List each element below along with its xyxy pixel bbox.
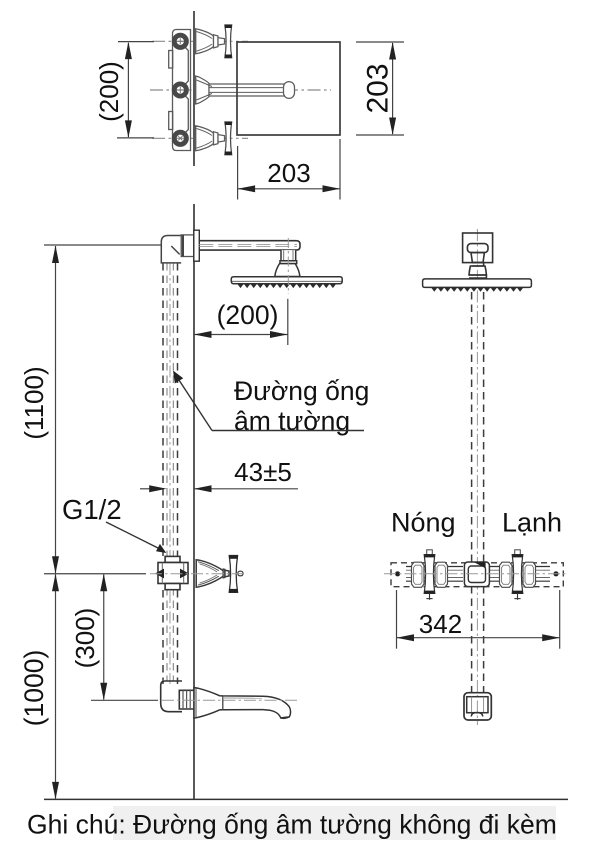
svg-text:Lạnh: Lạnh bbox=[502, 508, 562, 538]
svg-text:(300): (300) bbox=[70, 608, 100, 669]
svg-text:(200): (200) bbox=[94, 61, 124, 122]
svg-text:(1100): (1100) bbox=[19, 366, 49, 439]
svg-text:Đường ống: Đường ống bbox=[234, 376, 369, 406]
svg-text:(200): (200) bbox=[217, 300, 279, 330]
svg-text:43±5: 43±5 bbox=[234, 457, 292, 487]
svg-text:342: 342 bbox=[419, 609, 462, 639]
svg-text:203: 203 bbox=[362, 63, 395, 113]
svg-text:âm tường: âm tường bbox=[234, 406, 350, 436]
svg-text:G1/2: G1/2 bbox=[62, 494, 122, 525]
svg-text:Nóng: Nóng bbox=[391, 508, 456, 538]
svg-text:(1000): (1000) bbox=[19, 650, 49, 727]
svg-text:203: 203 bbox=[267, 158, 310, 188]
svg-text:Ghi chú: Đường ống âm tường kh: Ghi chú: Đường ống âm tường không đi kèm bbox=[27, 810, 557, 840]
